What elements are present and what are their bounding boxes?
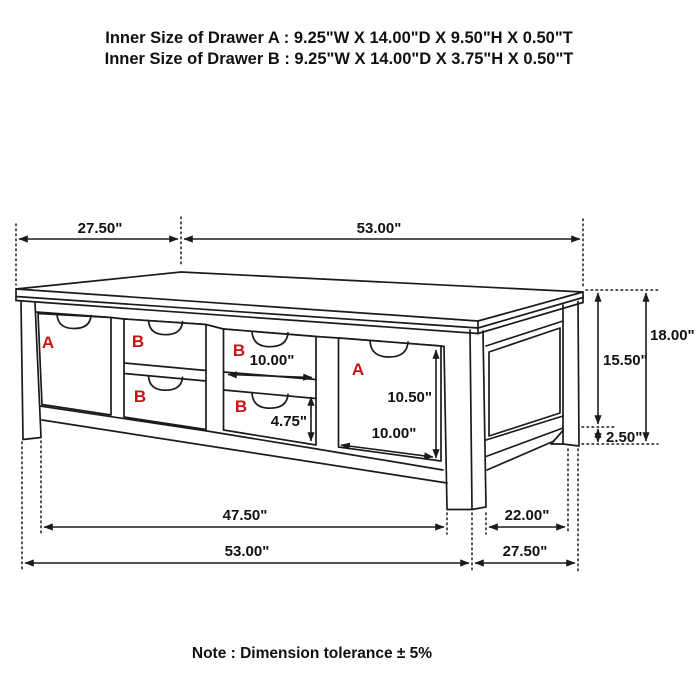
dim-label-side-inner-span: 22.00" <box>505 507 550 524</box>
dim-leg-inner-span: 47.50" <box>41 441 447 534</box>
dim-label-drawer-a-width: 10.00" <box>372 425 417 442</box>
drawer-a-inner-size-text: Inner Size of Drawer A : 9.25"W X 14.00"… <box>105 29 573 47</box>
drawer-label-b-bottom-left: B <box>134 387 146 406</box>
tolerance-note: Note : Dimension tolerance ± 5% <box>192 645 432 662</box>
dim-label-total-height: 18.00" <box>650 327 695 344</box>
dim-label-drawer-b-width: 10.00" <box>250 352 295 369</box>
dim-label-top-depth: 27.50" <box>78 220 123 237</box>
end-back-rail-line <box>487 441 554 470</box>
drawer-b-inner-size-text: Inner Size of Drawer B : 9.25"W X 14.00"… <box>105 50 574 68</box>
dim-label-height-to-stretcher: 15.50" <box>603 352 648 369</box>
drawer-inner-size-header: Inner Size of Drawer A : 9.25"W X 14.00"… <box>105 29 574 68</box>
dim-label-leg-inner-span: 47.50" <box>223 507 268 524</box>
dim-height-to-stretcher: 15.50" <box>582 293 648 427</box>
drawer-label-b-top-right: B <box>233 341 245 360</box>
drawer-label-a-left: A <box>42 333 54 352</box>
right-end-face <box>486 321 563 470</box>
back-right-leg <box>563 302 579 447</box>
drawer-label-b-bottom-right: B <box>235 397 247 416</box>
furniture-dimension-diagram: Inner Size of Drawer A : 9.25"W X 14.00"… <box>0 0 700 700</box>
dim-label-base-depth: 27.50" <box>503 543 548 560</box>
dim-label-top-width: 53.00" <box>357 220 402 237</box>
dim-label-foot-clearance: 2.50" <box>606 429 642 446</box>
dim-label-drawer-b-height: 4.75" <box>271 413 307 430</box>
dim-label-base-width: 53.00" <box>225 543 270 560</box>
dim-label-drawer-a-height: 10.50" <box>387 389 432 406</box>
tabletop-top-face <box>16 272 583 321</box>
dim-side-inner-span: 22.00" <box>486 449 568 534</box>
drawer-label-a-right: A <box>352 360 364 379</box>
front-right-leg <box>444 330 486 510</box>
dim-foot-clearance: 2.50" <box>598 429 642 446</box>
drawer-label-b-top-left: B <box>132 332 144 351</box>
